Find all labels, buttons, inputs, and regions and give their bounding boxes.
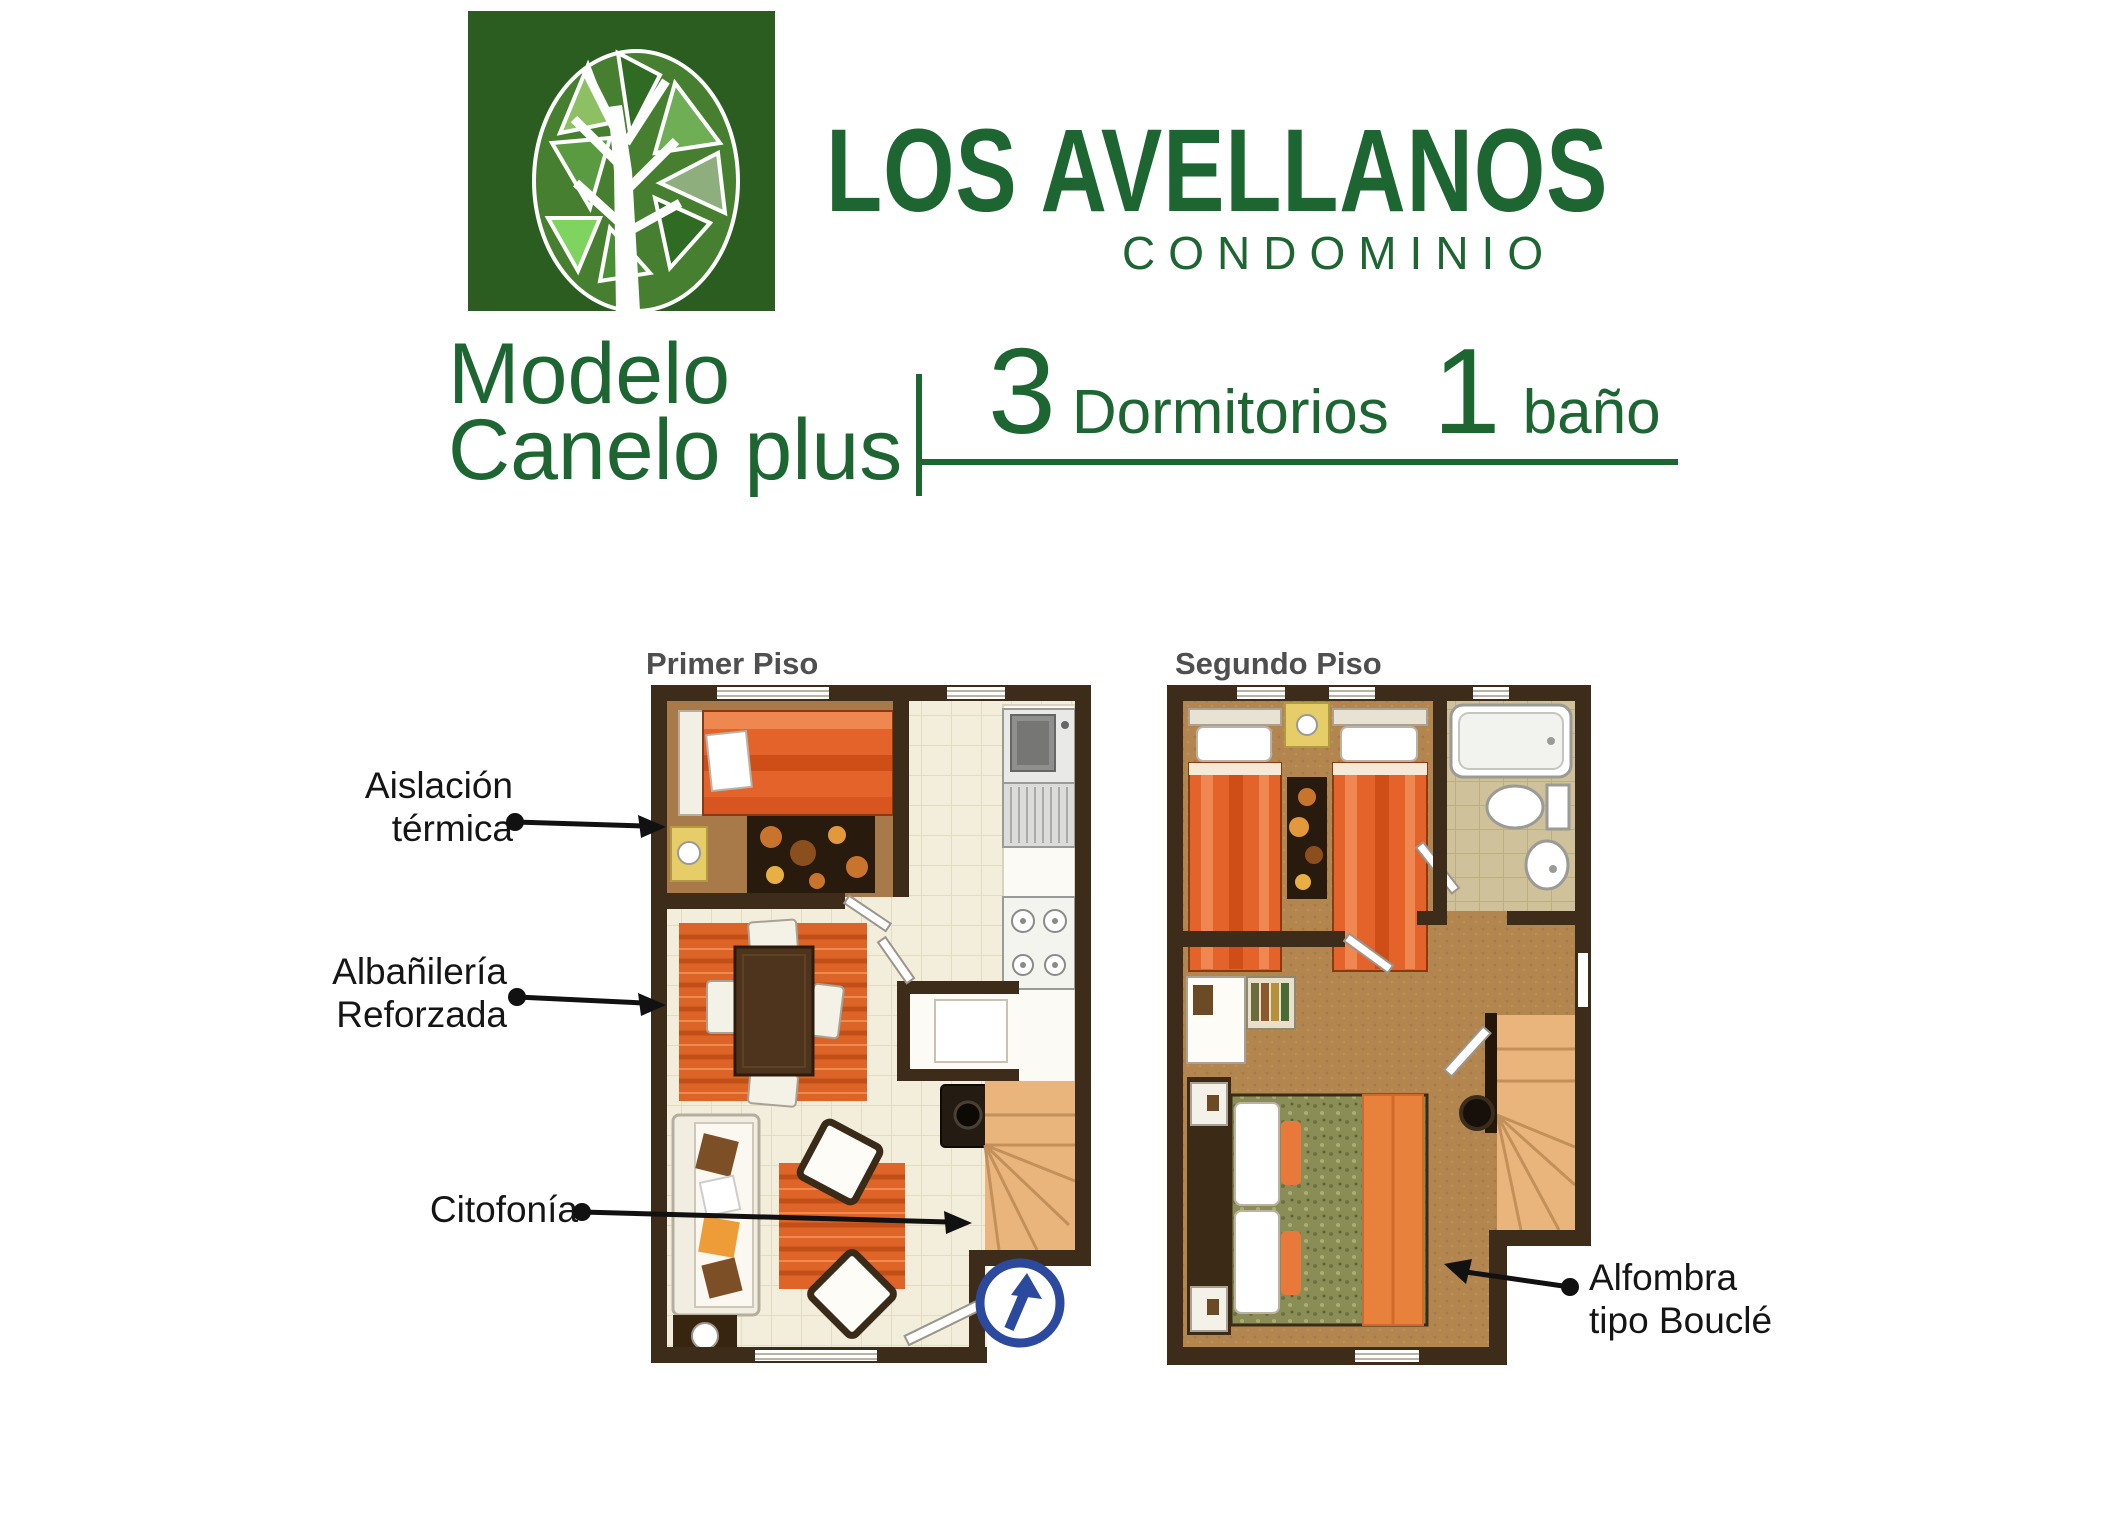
model-name: Modelo Canelo plus <box>448 336 902 488</box>
annotation-albanileria-reforzada: Albañilería Reforzada <box>332 950 507 1036</box>
bedrooms-label: Dormitorios <box>1072 382 1389 444</box>
annotation-citofonia: Citofonía <box>430 1188 578 1231</box>
specs: 3 Dormitorios 1 baño <box>988 330 1661 452</box>
bathrooms-label: baño <box>1523 382 1661 444</box>
annotation-aislacion-termica: Aislación térmica <box>365 764 513 850</box>
master-bedroom <box>1187 1077 1427 1335</box>
annotation-line: Citofonía <box>430 1188 578 1231</box>
bedroom-1 <box>667 701 893 897</box>
annotation-line: tipo Bouclé <box>1589 1299 1772 1342</box>
annotation-line: Reforzada <box>332 993 507 1036</box>
brochure-canvas: LOS AVELLANOS CONDOMINIO Modelo Canelo p… <box>0 0 2127 1535</box>
first-floor-label: Primer Piso <box>646 646 818 682</box>
bedrooms-count: 3 <box>988 330 1056 452</box>
divider-horizontal <box>916 459 1678 465</box>
second-floor-label: Segundo Piso <box>1175 646 1382 682</box>
bathrooms-count: 1 <box>1433 330 1501 452</box>
second-floor-plan <box>1167 685 1591 1365</box>
tree-logo-icon <box>468 11 775 311</box>
north-arrow-icon <box>980 1263 1060 1343</box>
brand-subtitle: CONDOMINIO <box>1122 226 1556 280</box>
model-line1: Modelo <box>448 336 902 412</box>
annotation-line: Aislación <box>365 764 513 807</box>
model-line2: Canelo plus <box>448 412 902 488</box>
first-floor-plan <box>651 685 1091 1375</box>
logo <box>468 11 775 311</box>
annotation-line: térmica <box>365 807 513 850</box>
stairs <box>985 1081 1075 1250</box>
annotation-line: Albañilería <box>332 950 507 993</box>
annotation-alfombra-boucle: Alfombra tipo Bouclé <box>1589 1256 1772 1342</box>
brand-title: LOS AVELLANOS <box>826 112 1608 230</box>
divider-vertical <box>916 374 922 496</box>
annotation-line: Alfombra <box>1589 1256 1772 1299</box>
dining-area <box>679 919 867 1107</box>
